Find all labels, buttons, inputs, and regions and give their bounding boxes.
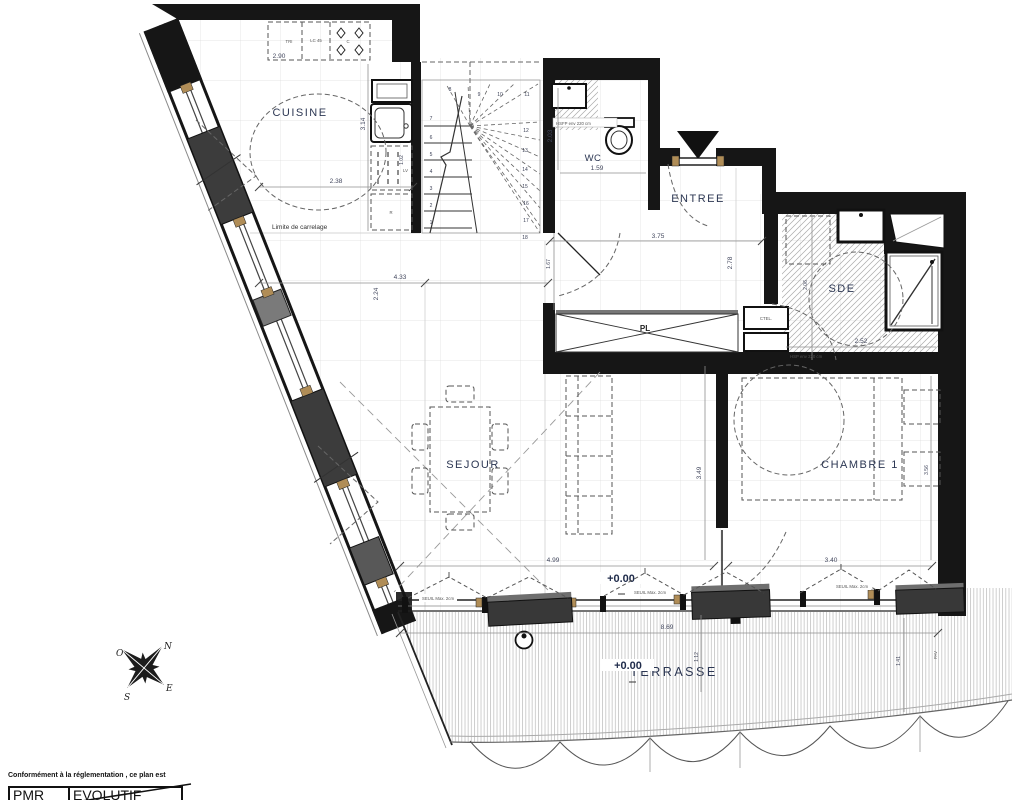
dim-kitchen-counter: 2.90 xyxy=(273,53,286,60)
dim-entree-depth: 2.78 xyxy=(727,256,734,269)
svg-text:13: 13 xyxy=(522,148,528,154)
wall-band-south xyxy=(543,352,966,374)
shutter-3 xyxy=(895,583,964,614)
footer: Conformément à la réglementation , ce pl… xyxy=(8,772,191,800)
dishwasher-label: LV xyxy=(403,168,408,173)
room-label-entree: ENTREE xyxy=(671,193,725,205)
appliance-cooktop-label: C xyxy=(346,39,349,44)
dim-terrasse-right: 1.41 xyxy=(896,656,902,666)
floor-surfaces xyxy=(180,20,1012,742)
sde-washbasin-faucet xyxy=(859,213,863,217)
compass-east: E xyxy=(165,684,173,694)
kitchen-sink xyxy=(371,104,412,142)
wc-basin-faucet xyxy=(567,86,571,90)
svg-text:17: 17 xyxy=(523,218,529,224)
dim-wc-width: 1.59 xyxy=(591,165,604,172)
floor-plan-canvas: TRI LC 45 C 2.90 LV R CUISINE 2.38 3.14 … xyxy=(0,0,1025,800)
pmr-label: PMR xyxy=(13,787,44,800)
sde-shower-head xyxy=(930,260,934,264)
room-label-sde: SDE xyxy=(828,283,855,295)
wall-wc-right xyxy=(648,80,660,210)
dim-kitchen-column: 1.02 xyxy=(399,155,405,165)
limite-carrelage-label: Limite de carrelage xyxy=(272,224,328,231)
seuil-label-1: SEUIL Max. 2cm xyxy=(422,596,454,601)
dim-hall-depth: 1.67 xyxy=(546,259,552,269)
wall-top-kitchen xyxy=(152,4,396,20)
dim-terrasse-left: 1.12 xyxy=(694,652,700,662)
paving-label: PAV xyxy=(933,651,938,659)
svg-text:15: 15 xyxy=(522,184,528,190)
dim-kitchen-width: 2.38 xyxy=(330,178,343,185)
wall-wc-top xyxy=(543,58,660,80)
seuil-label-2: SEUIL Max. 2cm xyxy=(634,590,666,595)
entrance-jamb-right xyxy=(717,156,724,166)
svg-text:11: 11 xyxy=(524,92,529,98)
dim-chambre-width: 3.40 xyxy=(825,557,838,564)
svg-text:5: 5 xyxy=(430,152,433,158)
svg-text:4: 4 xyxy=(430,169,433,175)
kitchen-tall-unit xyxy=(372,80,412,102)
room-label-cuisine: CUISINE xyxy=(272,107,327,119)
entrance-jamb-left xyxy=(672,156,679,166)
compass-north: N xyxy=(163,642,173,652)
seuil-label-3: SEUIL Max. 2cm xyxy=(836,584,868,589)
svg-text:7: 7 xyxy=(430,116,433,122)
dim-sejour-length: 4.99 xyxy=(547,557,560,564)
footer-note: Conformément à la réglementation , ce pl… xyxy=(8,772,166,779)
dim-chambre-left: 3.49 xyxy=(696,466,703,479)
wall-pl-left xyxy=(543,303,555,352)
dim-terrasse-width: 8.69 xyxy=(661,624,674,631)
room-label-sejour: SEJOUR xyxy=(446,459,500,471)
ctel-box-2 xyxy=(744,333,788,351)
appliance-tri-label: TRI xyxy=(286,39,293,44)
level-sejour: +0.00 xyxy=(607,573,635,585)
column-detail-dot xyxy=(522,634,527,639)
placard: PL CTEL. xyxy=(556,307,788,352)
dim-kitchen-depth: 3.14 xyxy=(360,117,367,130)
dim-sde-depth: 2.06 xyxy=(803,280,809,290)
placard-rail xyxy=(556,310,738,314)
svg-text:1: 1 xyxy=(430,220,433,226)
level-terrasse: +0.00 xyxy=(614,660,642,672)
svg-text:2: 2 xyxy=(430,203,433,209)
dim-entree-width: 3.75 xyxy=(652,233,665,240)
fridge-label: R xyxy=(389,210,392,215)
dim-chambre-right: 3.56 xyxy=(924,465,930,475)
svg-text:14: 14 xyxy=(522,167,528,173)
ctel-label: CTEL. xyxy=(760,316,772,321)
svg-text:10: 10 xyxy=(497,92,503,98)
svg-text:12: 12 xyxy=(523,128,529,134)
sde-hsp-note: HSP env 220 cm xyxy=(790,354,823,359)
wc-hsfp-note: HSFP env 220 cm xyxy=(556,121,591,126)
compass-rose: N E S O xyxy=(105,627,182,704)
dim-sejour-depth: 2.24 xyxy=(373,287,380,300)
svg-text:18: 18 xyxy=(522,235,528,241)
compass-west: O xyxy=(116,649,124,659)
svg-text:8: 8 xyxy=(449,87,452,93)
svg-text:16: 16 xyxy=(523,201,529,207)
dim-sde-width: 2.52 xyxy=(855,338,868,345)
compass-south: S xyxy=(124,693,130,703)
dim-wc-depth: 2.03 xyxy=(547,129,554,142)
appliance-lc45-label: LC 45 xyxy=(310,38,322,43)
svg-text:9: 9 xyxy=(478,92,481,98)
entrance-door-leaf xyxy=(679,158,717,165)
wall-sejour-chambre xyxy=(716,362,728,528)
wall-step xyxy=(392,4,420,62)
room-label-pl: PL xyxy=(640,324,650,333)
wall-sde-left xyxy=(764,214,778,304)
room-label-chambre1: CHAMBRE 1 xyxy=(821,459,899,471)
wc-toilet-bowl xyxy=(606,126,632,154)
dim-sejour-width: 4.33 xyxy=(394,274,407,281)
shutter-1 xyxy=(487,592,572,626)
svg-text:6: 6 xyxy=(430,135,433,141)
svg-text:3: 3 xyxy=(430,186,433,192)
room-label-wc: WC xyxy=(585,153,602,164)
